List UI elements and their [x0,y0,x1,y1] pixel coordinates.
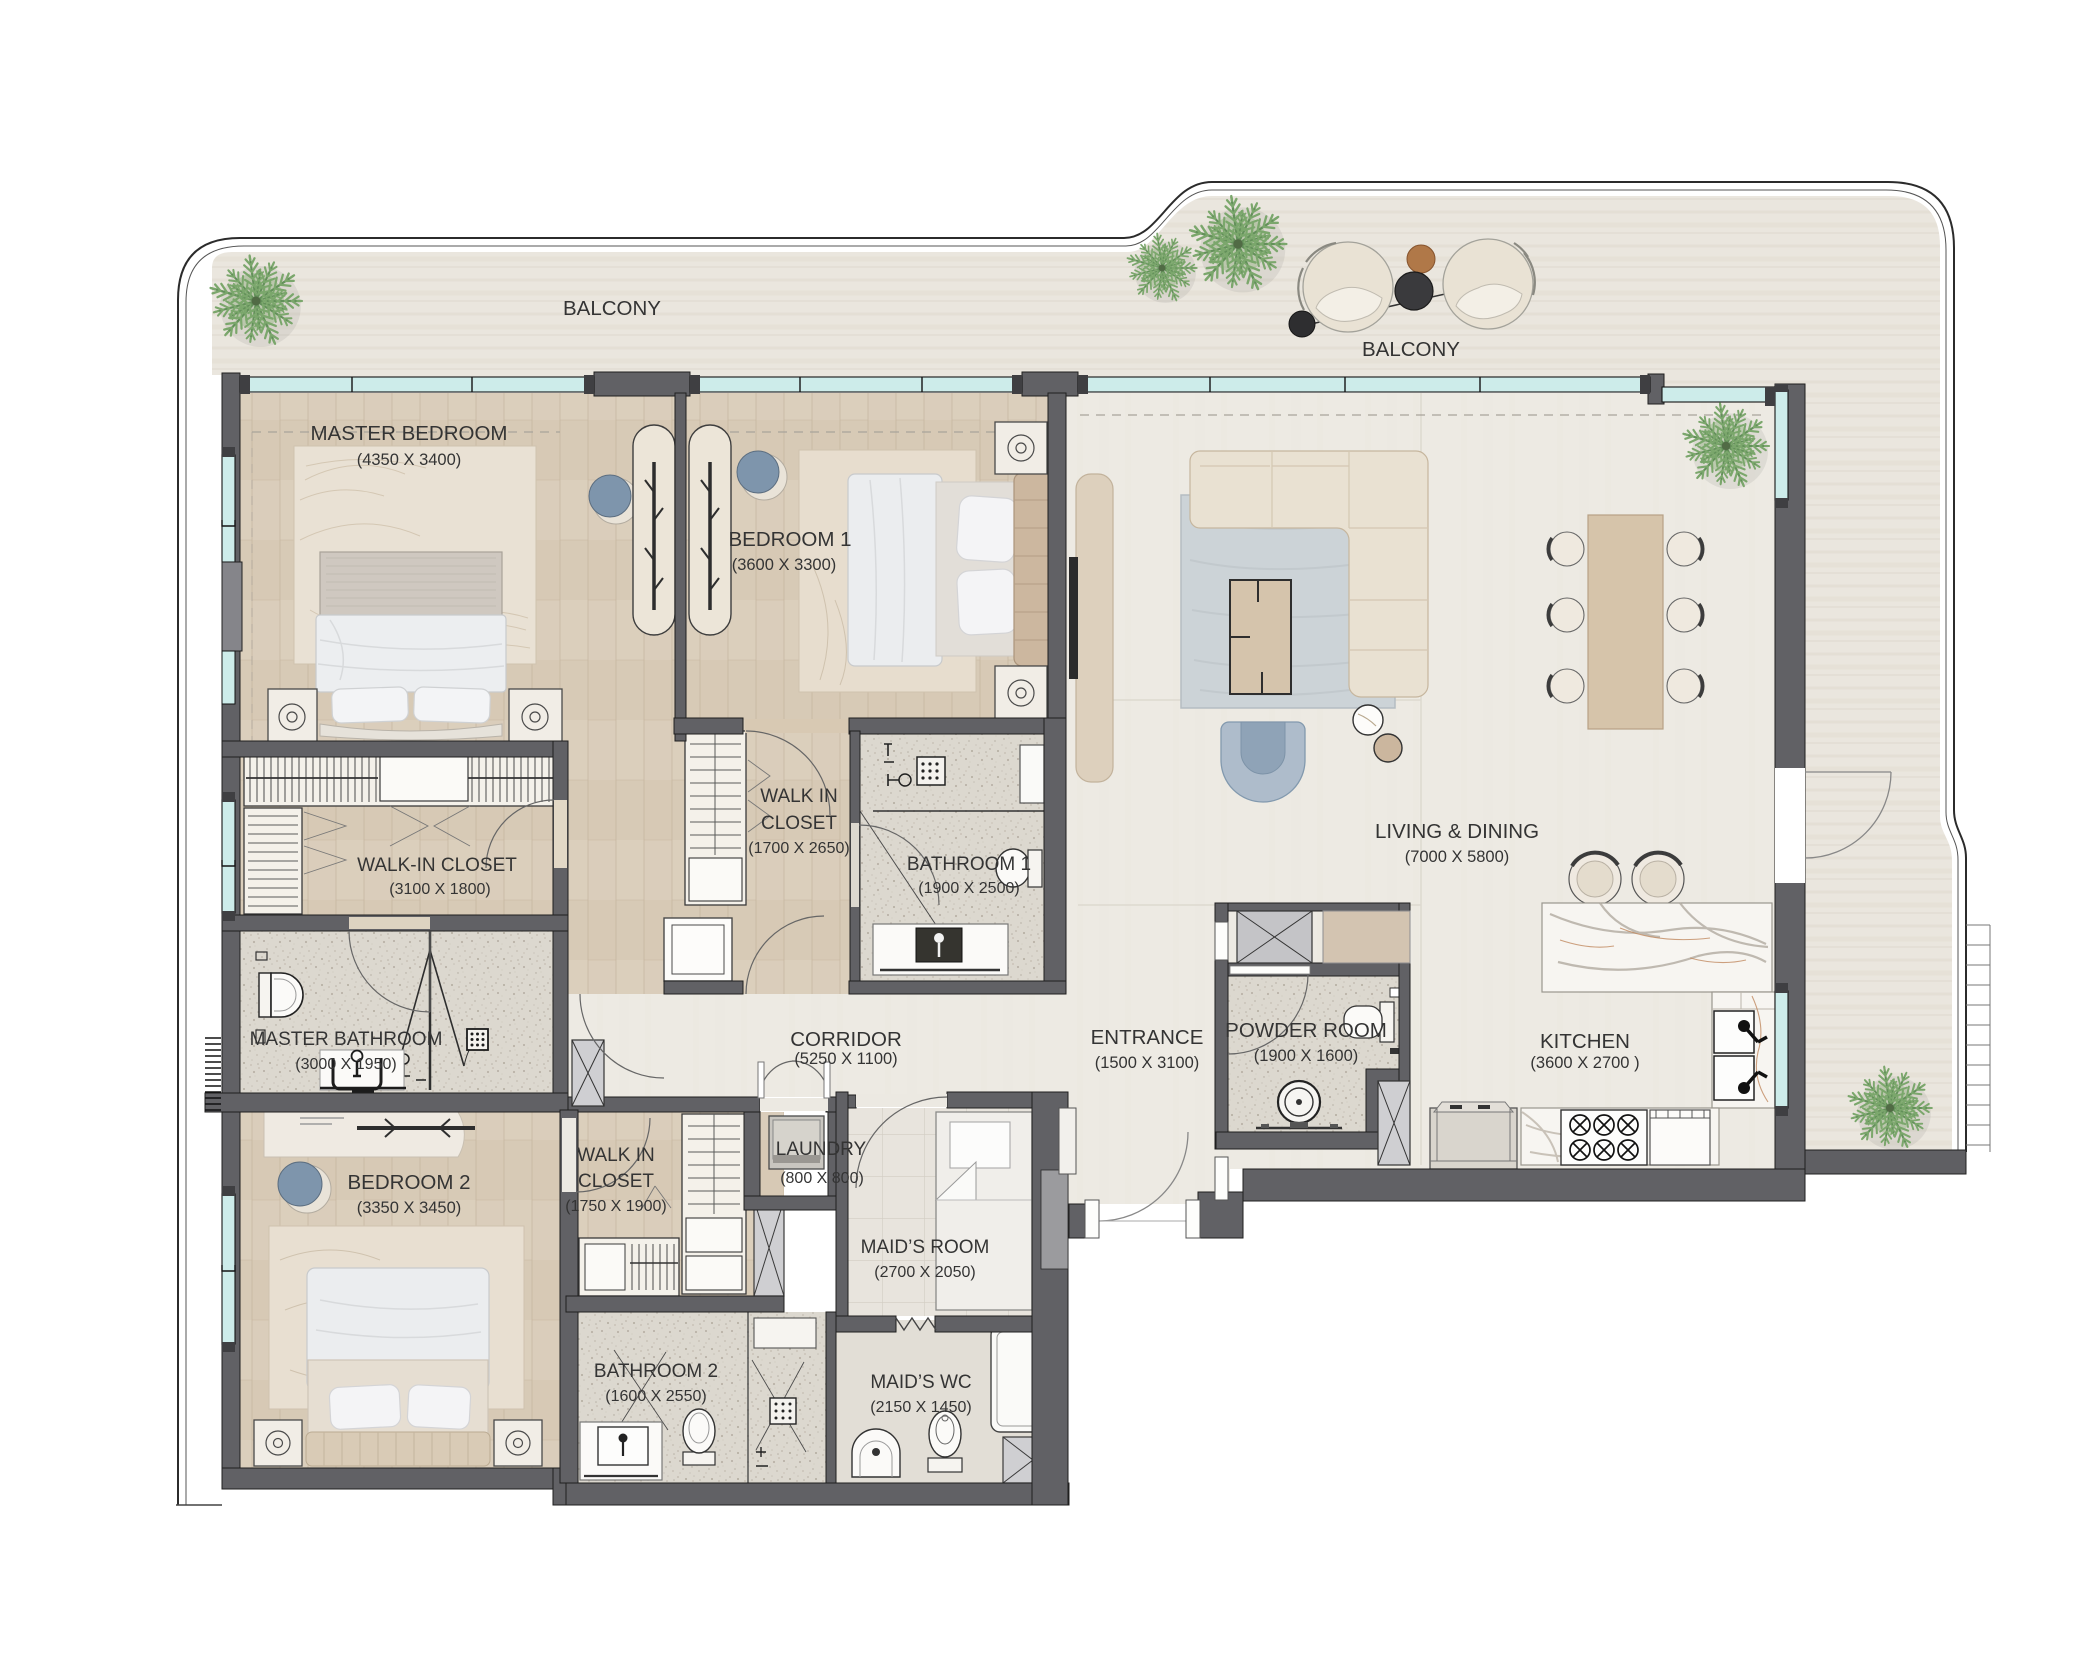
svg-text:MAID’S ROOM: MAID’S ROOM [861,1237,990,1258]
svg-text:BATHROOM 1: BATHROOM 1 [907,854,1031,875]
svg-text:CLOSET: CLOSET [761,813,837,834]
svg-text:ENTRANCE: ENTRANCE [1091,1026,1204,1049]
svg-text:(1750 X 1900): (1750 X 1900) [565,1198,666,1215]
svg-text:LAUNDRY: LAUNDRY [776,1139,867,1160]
svg-text:(7000 X 5800): (7000 X 5800) [1405,848,1510,866]
svg-text:CORRIDOR: CORRIDOR [790,1028,902,1051]
svg-text:(1900 X 1600): (1900 X 1600) [1254,1047,1359,1065]
svg-text:(4350 X 3400): (4350 X 3400) [357,451,462,469]
svg-text:POWDER ROOM: POWDER ROOM [1225,1019,1387,1042]
svg-text:(1700 X 2650): (1700 X 2650) [748,840,849,857]
svg-text:CLOSET: CLOSET [578,1171,654,1192]
svg-text:WALK IN: WALK IN [577,1145,654,1166]
svg-text:(1500 X 3100): (1500 X 3100) [1095,1054,1200,1072]
svg-text:(3600 X 2700 ): (3600 X 2700 ) [1530,1054,1639,1072]
svg-text:WALK-IN CLOSET: WALK-IN CLOSET [357,855,517,876]
svg-text:BATHROOM 2: BATHROOM 2 [594,1361,718,1382]
svg-text:(3350 X 3450): (3350 X 3450) [357,1199,462,1217]
svg-text:BEDROOM 1: BEDROOM 1 [728,528,851,551]
svg-text:(1600 X 2550): (1600 X 2550) [605,1388,706,1405]
svg-text:(3100 X 1800): (3100 X 1800) [389,881,490,898]
svg-text:(800 X 800): (800 X 800) [780,1170,864,1187]
svg-text:(2150 X 1450): (2150 X 1450) [870,1399,971,1416]
svg-text:(2700 X 2050): (2700 X 2050) [874,1264,975,1281]
svg-text:(5250 X 1100): (5250 X 1100) [794,1050,897,1068]
svg-text:LIVING & DINING: LIVING & DINING [1375,820,1539,843]
svg-text:MASTER BATHROOM: MASTER BATHROOM [250,1029,443,1050]
svg-text:(3000 X 1950): (3000 X 1950) [295,1056,396,1073]
svg-text:MAID’S WC: MAID’S WC [870,1372,971,1393]
svg-text:(3600 X 3300): (3600 X 3300) [732,556,837,574]
svg-text:BALCONY: BALCONY [1362,338,1460,361]
svg-text:KITCHEN: KITCHEN [1540,1030,1630,1053]
svg-text:(1900 X 2500): (1900 X 2500) [918,880,1019,897]
svg-text:WALK IN: WALK IN [760,786,837,807]
svg-text:BALCONY: BALCONY [563,297,661,320]
svg-text:MASTER BEDROOM: MASTER BEDROOM [310,422,507,445]
svg-text:BEDROOM 2: BEDROOM 2 [347,1171,470,1194]
